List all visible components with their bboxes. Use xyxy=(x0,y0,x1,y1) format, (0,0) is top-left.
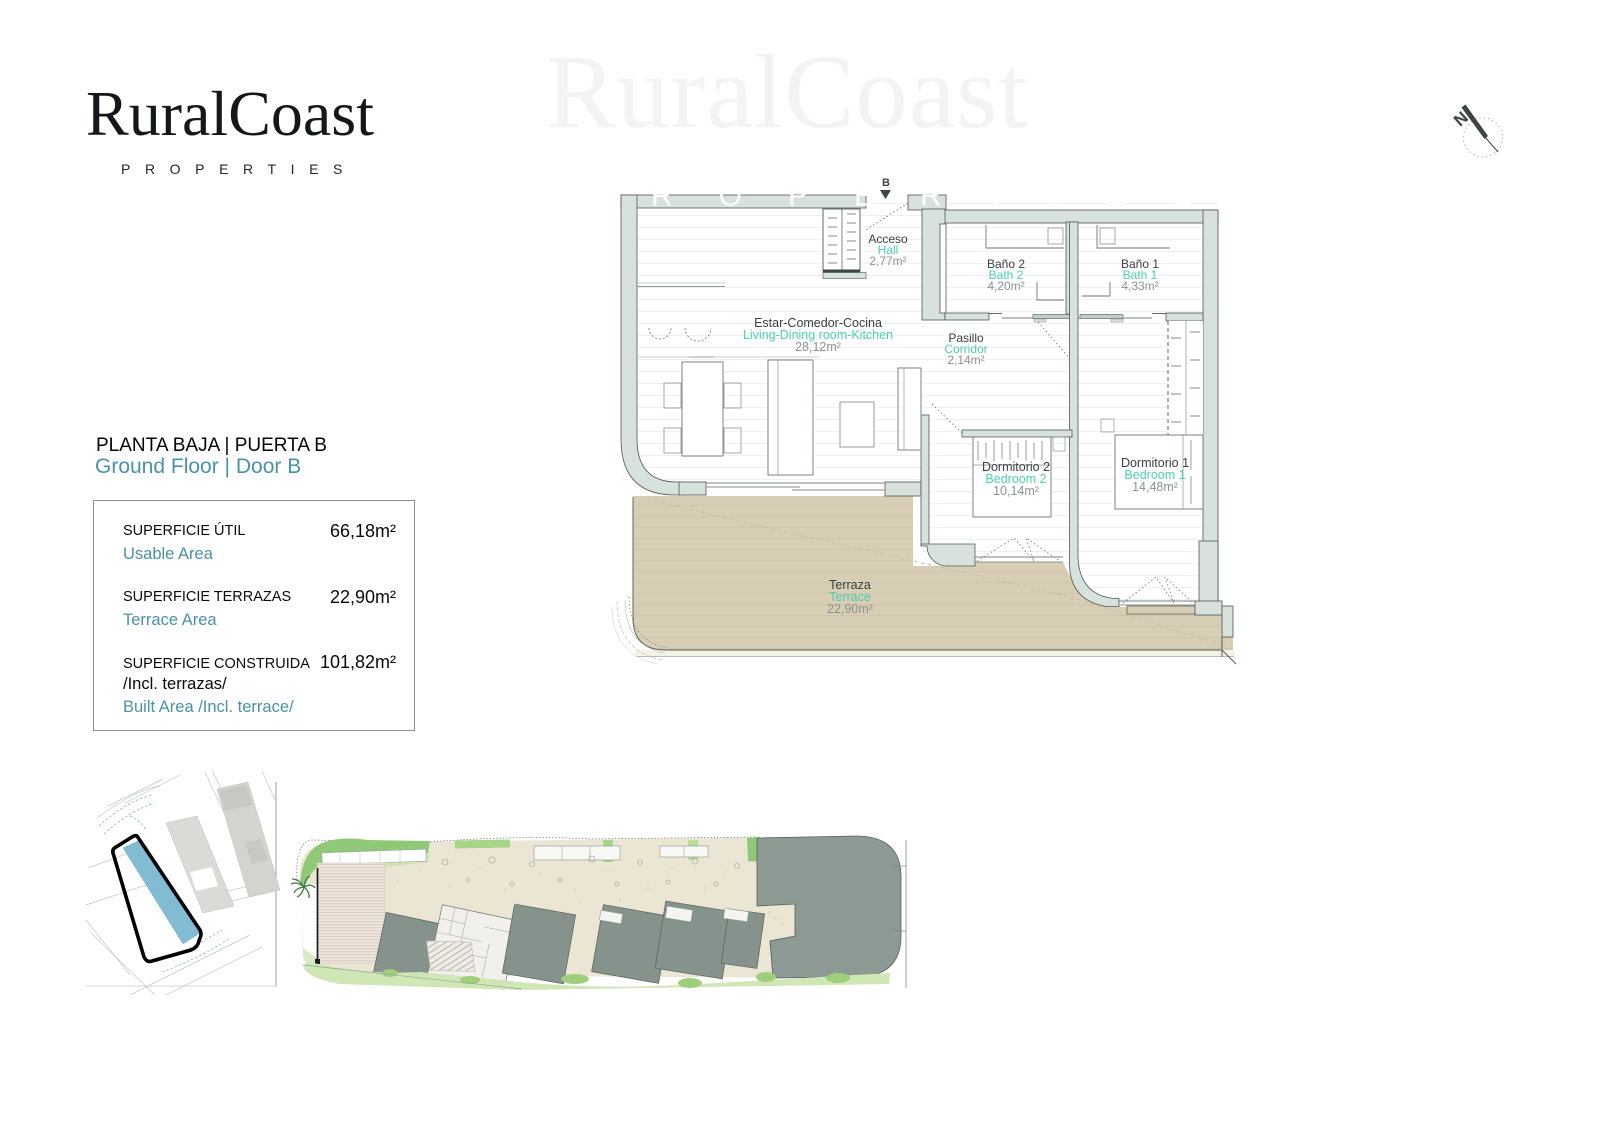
svg-text:2,77m²: 2,77m² xyxy=(869,254,906,268)
svg-text:28,12m²: 28,12m² xyxy=(795,340,841,354)
svg-text:22,90m²: 22,90m² xyxy=(827,602,873,616)
svg-text:10,14m²: 10,14m² xyxy=(993,484,1039,498)
svg-text:PROPERTIES: PROPERTIES xyxy=(585,180,1238,213)
svg-text:14,48m²: 14,48m² xyxy=(1132,480,1178,494)
svg-text:4,20m²: 4,20m² xyxy=(987,279,1024,293)
svg-text:4,33m²: 4,33m² xyxy=(1121,279,1158,293)
svg-text:2,14m²: 2,14m² xyxy=(947,353,984,367)
